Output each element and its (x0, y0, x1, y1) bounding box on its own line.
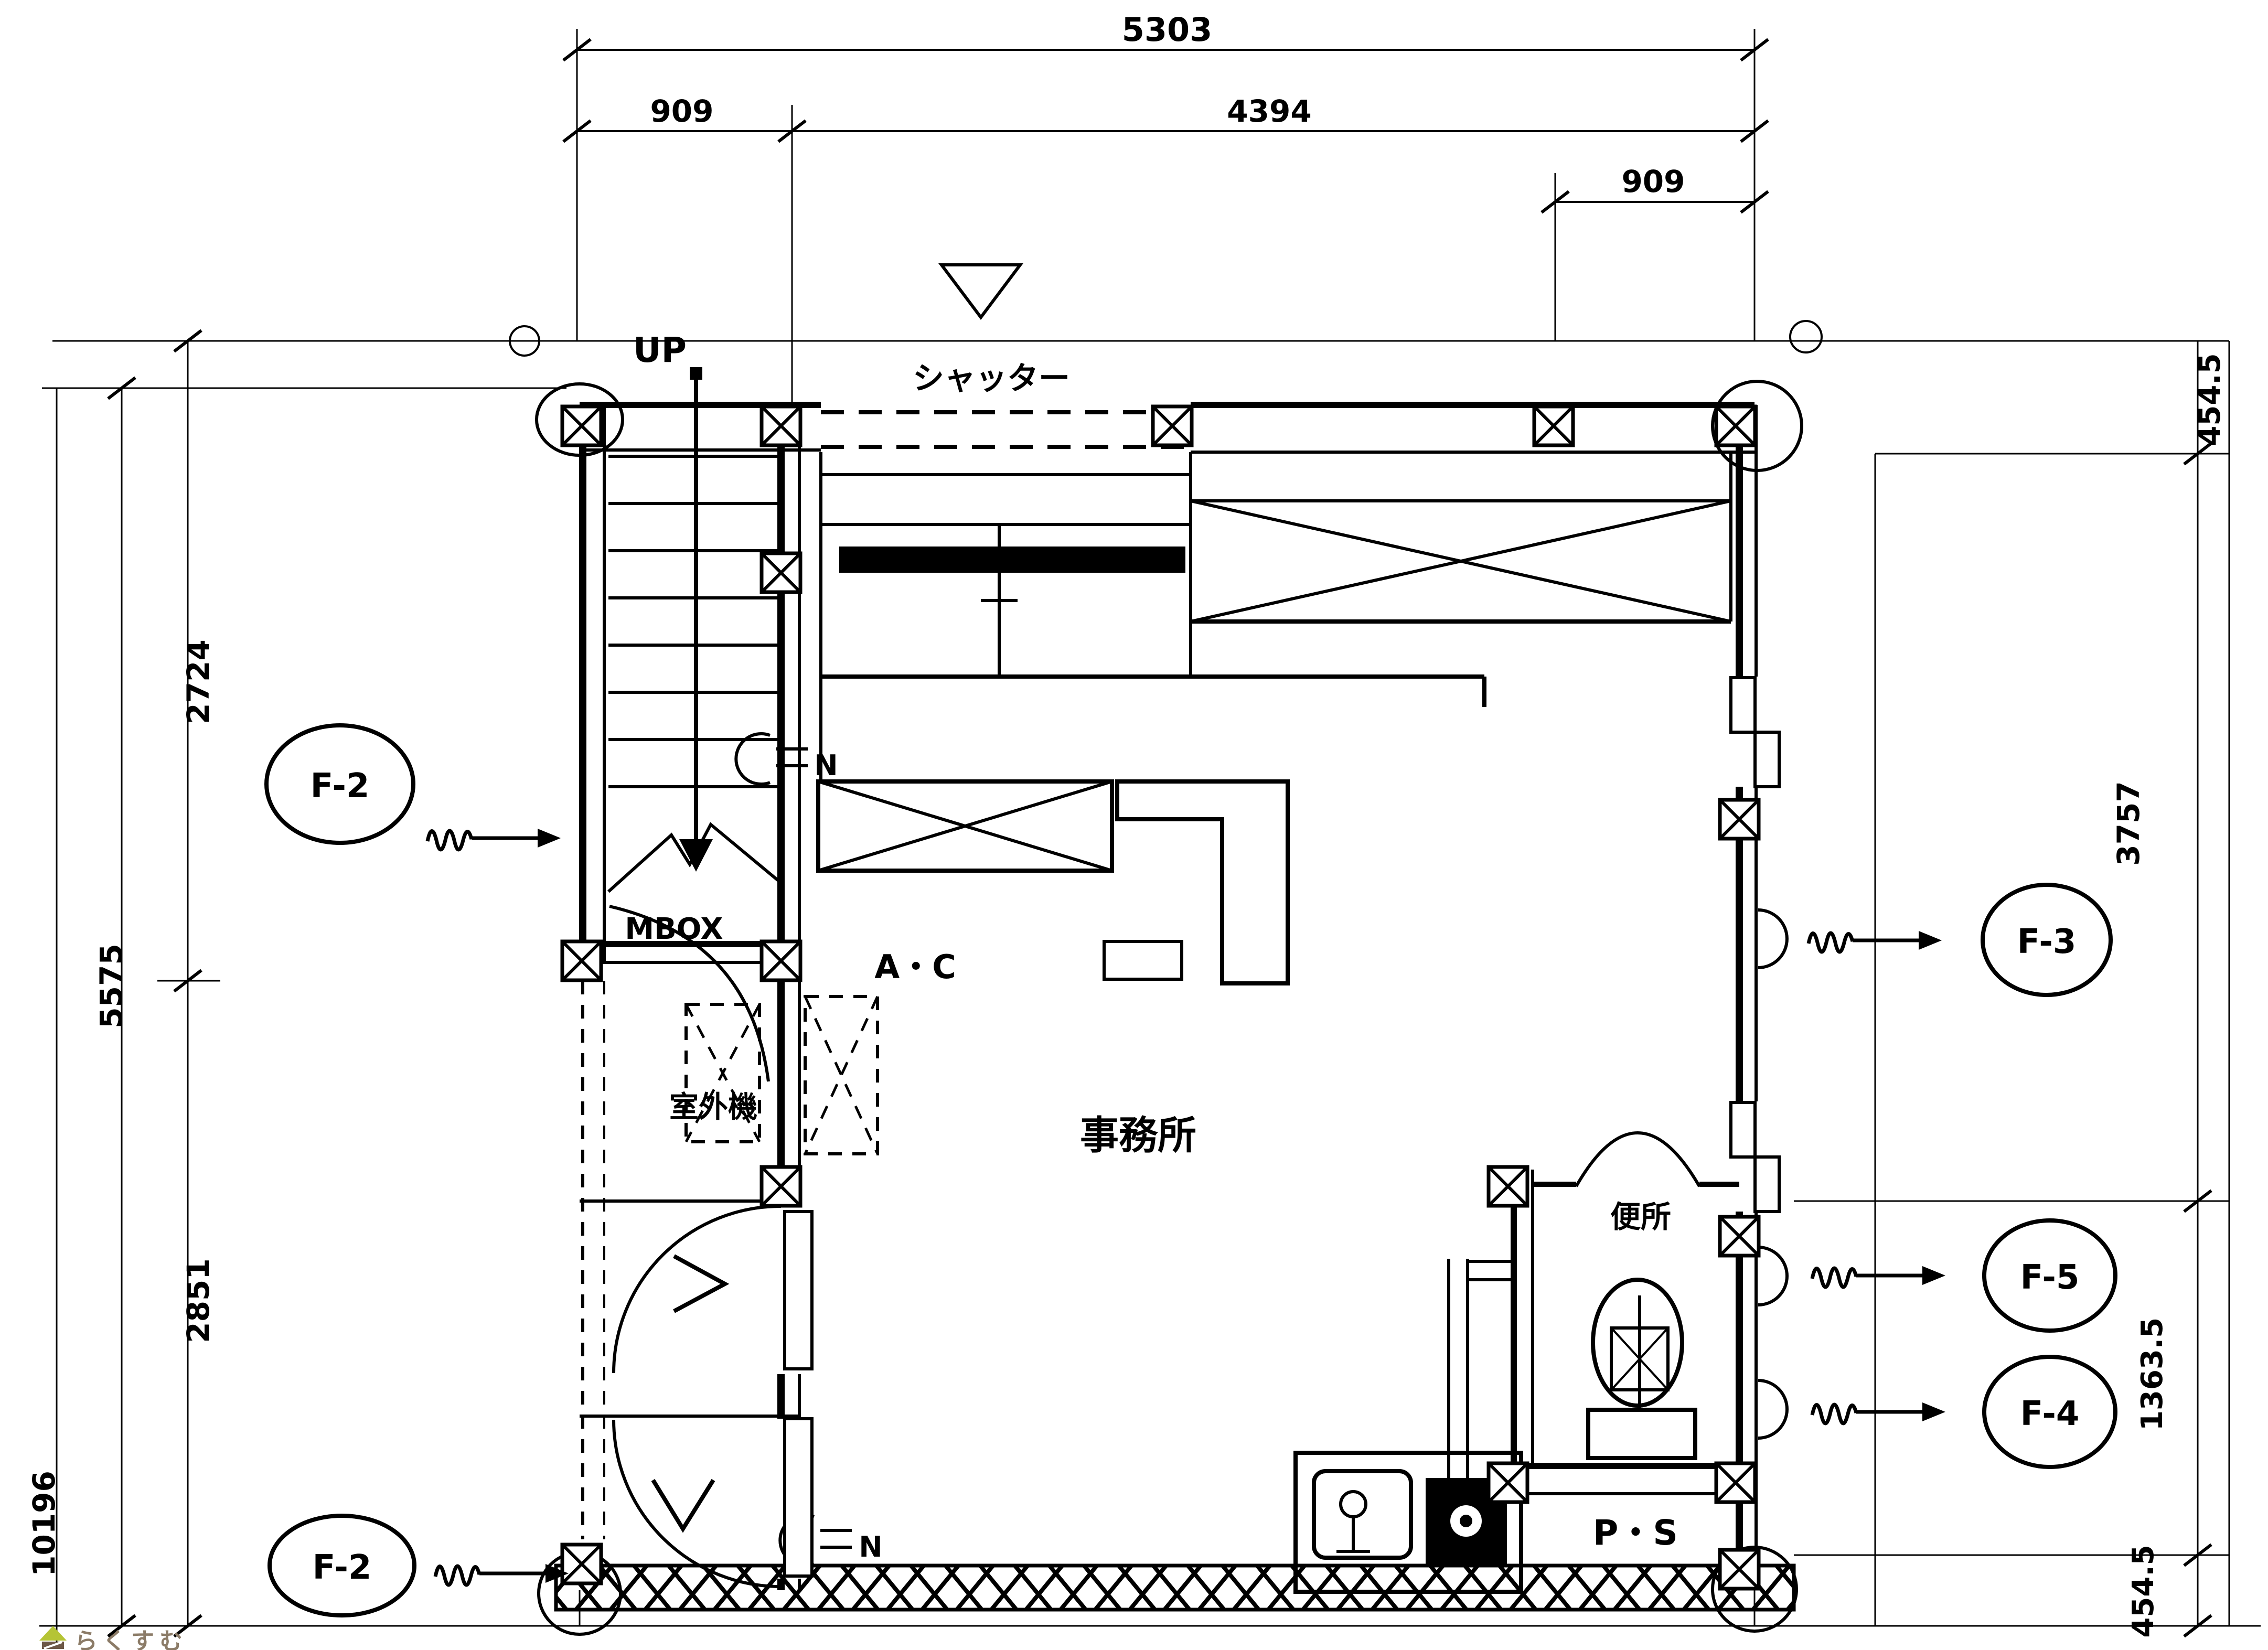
door-leaf (785, 1419, 812, 1576)
column-marker-icon (1720, 1550, 1759, 1589)
column-marker-icon (562, 406, 601, 445)
door-swing-arc (614, 1206, 781, 1373)
dim-left-sum-value: 5575 (93, 944, 129, 1028)
shutter-label: シャッター (913, 360, 1070, 397)
dim-right-top-value: 454.5 (2193, 353, 2227, 446)
column-marker-icon (1534, 406, 1573, 445)
door-triangle-icon (653, 1480, 713, 1529)
dim-top-overall-value: 5303 (1122, 10, 1213, 49)
column-marker-icon (562, 1545, 601, 1583)
dimension-left-chain: 2724 5575 2851 10196 (26, 330, 220, 1647)
dim-top-right-value: 909 (1621, 164, 1685, 199)
upper-beam-xbrace (1191, 452, 1731, 622)
office-room-label: 事務所 (1080, 1113, 1196, 1158)
f5-marker: F-5 (1812, 1220, 2115, 1331)
toilet-tank (1588, 1410, 1695, 1458)
staircase (583, 367, 799, 962)
dim-top-left-value: 909 (650, 93, 713, 129)
dimension-extension-lines-top (577, 29, 1755, 414)
dim-right-lower-value: 1363.5 (2135, 1317, 2169, 1431)
column-marker-icon (1489, 1167, 1527, 1206)
l-shaped-counter (1117, 781, 1288, 983)
pipe-space-label: P・S (1593, 1513, 1678, 1553)
dimension-top-overall: 5303 (563, 10, 1768, 60)
f2-upper-label: F-2 (311, 767, 370, 806)
insulation-arrow-icon (427, 829, 561, 850)
insulation-arrow-icon (1812, 1266, 1945, 1287)
ac-label: A・C (874, 948, 956, 986)
vent-half-circle-icon (1758, 1380, 1787, 1438)
f3-marker: F-3 (1809, 885, 2111, 995)
vent-half-circle-icon (1758, 1247, 1787, 1305)
entry-door-lower (614, 1419, 812, 1587)
ac-unit-dashed-box (805, 997, 878, 1154)
toilet-door-arc (1576, 1133, 1699, 1186)
watermark-text: らくすむ (74, 1628, 188, 1650)
column-marker-icon (762, 553, 800, 592)
column-marker-icon (762, 941, 800, 980)
f5-label: F-5 (2020, 1258, 2080, 1297)
supply-pipes (1449, 1259, 1514, 1480)
entry-door-upper (580, 1201, 812, 1416)
column-marker-icon (1716, 1463, 1755, 1502)
insulation-arrow-icon (435, 1564, 569, 1585)
gas-meter-symbol: N (736, 734, 838, 784)
column-marker-icon (1153, 406, 1192, 445)
toilet-room-label: 便所 (1610, 1199, 1671, 1235)
f2-lower-label: F-2 (313, 1548, 372, 1587)
column-marker-icon (762, 1167, 800, 1206)
insulation-arrow-icon (1812, 1402, 1945, 1423)
watermark-house-roof-icon (39, 1626, 67, 1641)
f4-label: F-4 (2020, 1395, 2080, 1433)
dim-top-main-value: 4394 (1227, 93, 1311, 129)
bottom-hatched-wall (556, 1566, 1794, 1610)
column-marker-icon (562, 941, 601, 980)
vent-half-circle-icon (1758, 910, 1787, 968)
f4-marker: F-4 (1812, 1357, 2115, 1467)
column-marker-icon (1720, 800, 1759, 839)
dim-left-upper-value: 2724 (180, 639, 216, 724)
gas-meter-label: N (859, 1530, 882, 1563)
dim-right-main-value: 3757 (2111, 781, 2146, 865)
f3-label: F-3 (2017, 923, 2077, 961)
dim-left-total-value: 10196 (26, 1471, 62, 1577)
outdoor-unit-label: 室外機 (669, 1090, 757, 1124)
dimension-top-segments: 909 4394 (563, 93, 1768, 142)
door-leaf (785, 1212, 812, 1369)
dimension-top-right-offset: 909 (1542, 164, 1768, 212)
f2-lower-marker: F-2 (270, 1516, 569, 1615)
stair-break-line (608, 824, 779, 892)
shutter-sill-bar (839, 547, 1185, 573)
dim-left-lower-value: 2851 (180, 1258, 216, 1343)
stair-start-dot (690, 367, 702, 380)
column-marker-icon (1720, 1217, 1759, 1256)
gas-meter-label: N (814, 749, 838, 782)
column-marker-icon (1716, 406, 1755, 445)
faucet-icon (1341, 1492, 1366, 1517)
f2-upper-marker: F-2 (266, 725, 561, 850)
column-marker-icon (762, 406, 800, 445)
window-symbol (1731, 678, 1779, 787)
dimension-right-chain: 454.5 3757 1363.5 454.5 (1794, 341, 2229, 1638)
level-triangle-icon (942, 265, 1020, 317)
column-marker-icon (1489, 1463, 1527, 1502)
floor-box (1104, 941, 1182, 979)
grid-marker-icon (1790, 321, 1822, 352)
watermark: らくすむ (39, 1626, 188, 1650)
floor-plan-canvas: 5303 909 4394 909 2724 5575 2851 1 (0, 0, 2268, 1650)
center-xbrace-band (818, 781, 1112, 871)
floor-plan-page: 5303 909 4394 909 2724 5575 2851 1 (0, 0, 2268, 1650)
door-triangle-icon (674, 1256, 725, 1311)
dim-right-bottom-value: 454.5 (2126, 1545, 2160, 1637)
up-label: UP (633, 330, 687, 370)
window-symbol (1731, 1102, 1779, 1212)
